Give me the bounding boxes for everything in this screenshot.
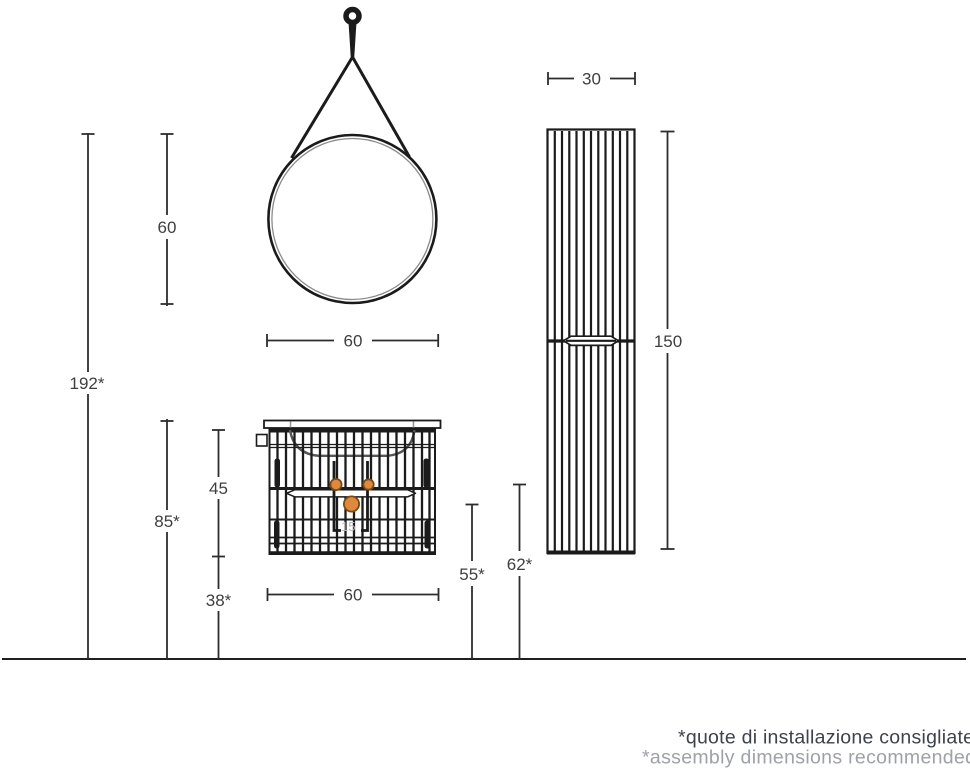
svg-text:38*: 38* [206, 591, 232, 610]
svg-text:30: 30 [582, 70, 601, 89]
svg-text:60: 60 [344, 332, 363, 351]
svg-text:150: 150 [654, 332, 682, 351]
svg-text:62*: 62* [507, 555, 533, 574]
svg-text:55*: 55* [459, 565, 485, 584]
svg-text:85*: 85* [154, 512, 180, 531]
svg-text:60: 60 [344, 586, 363, 605]
svg-text:60: 60 [158, 218, 177, 237]
svg-text:15: 15 [341, 519, 355, 534]
svg-text:*assembly dimensions recommend: *assembly dimensions recommended [642, 747, 970, 768]
svg-text:45: 45 [209, 479, 228, 498]
svg-text:192*: 192* [70, 374, 105, 393]
svg-text:*quote di installazione consig: *quote di installazione consigliate [678, 727, 970, 749]
